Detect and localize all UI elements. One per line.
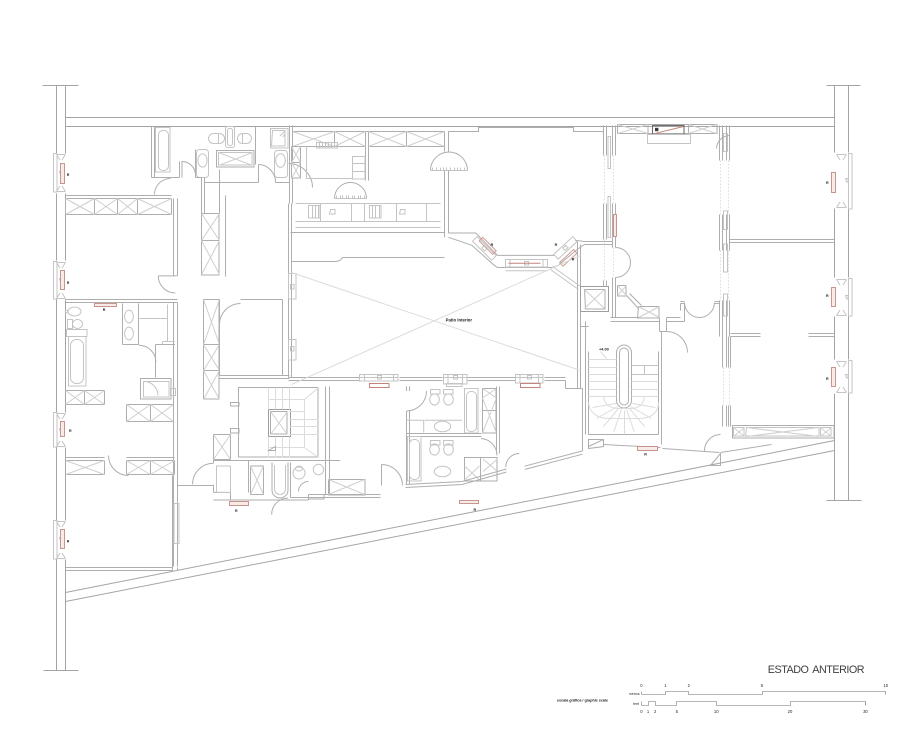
svg-text:R: R xyxy=(555,243,558,247)
svg-text:R: R xyxy=(826,181,829,185)
svg-text:feet: feet xyxy=(633,702,639,706)
svg-text:R: R xyxy=(67,173,70,177)
svg-text:10: 10 xyxy=(883,683,888,688)
svg-text:30: 30 xyxy=(863,709,868,714)
svg-text:+4.00: +4.00 xyxy=(599,347,609,352)
svg-text:R: R xyxy=(491,243,494,247)
svg-text:R: R xyxy=(67,540,70,544)
svg-text:R: R xyxy=(103,308,106,312)
svg-text:R: R xyxy=(572,258,575,262)
svg-text:R: R xyxy=(826,377,829,381)
svg-text:R: R xyxy=(69,429,72,433)
svg-text:R: R xyxy=(644,453,647,457)
svg-text:Patio interior: Patio interior xyxy=(446,317,473,322)
svg-text:20: 20 xyxy=(788,709,793,714)
svg-text:escala gráfica / graphic scale: escala gráfica / graphic scale xyxy=(557,698,608,702)
svg-text:10: 10 xyxy=(714,709,719,714)
svg-text:ESTADO ANTERIOR: ESTADO ANTERIOR xyxy=(768,664,865,676)
svg-text:R: R xyxy=(235,509,238,513)
svg-text:R: R xyxy=(474,508,477,512)
svg-text:metros: metros xyxy=(629,692,640,696)
svg-text:R: R xyxy=(67,281,70,285)
svg-text:R: R xyxy=(826,294,829,298)
